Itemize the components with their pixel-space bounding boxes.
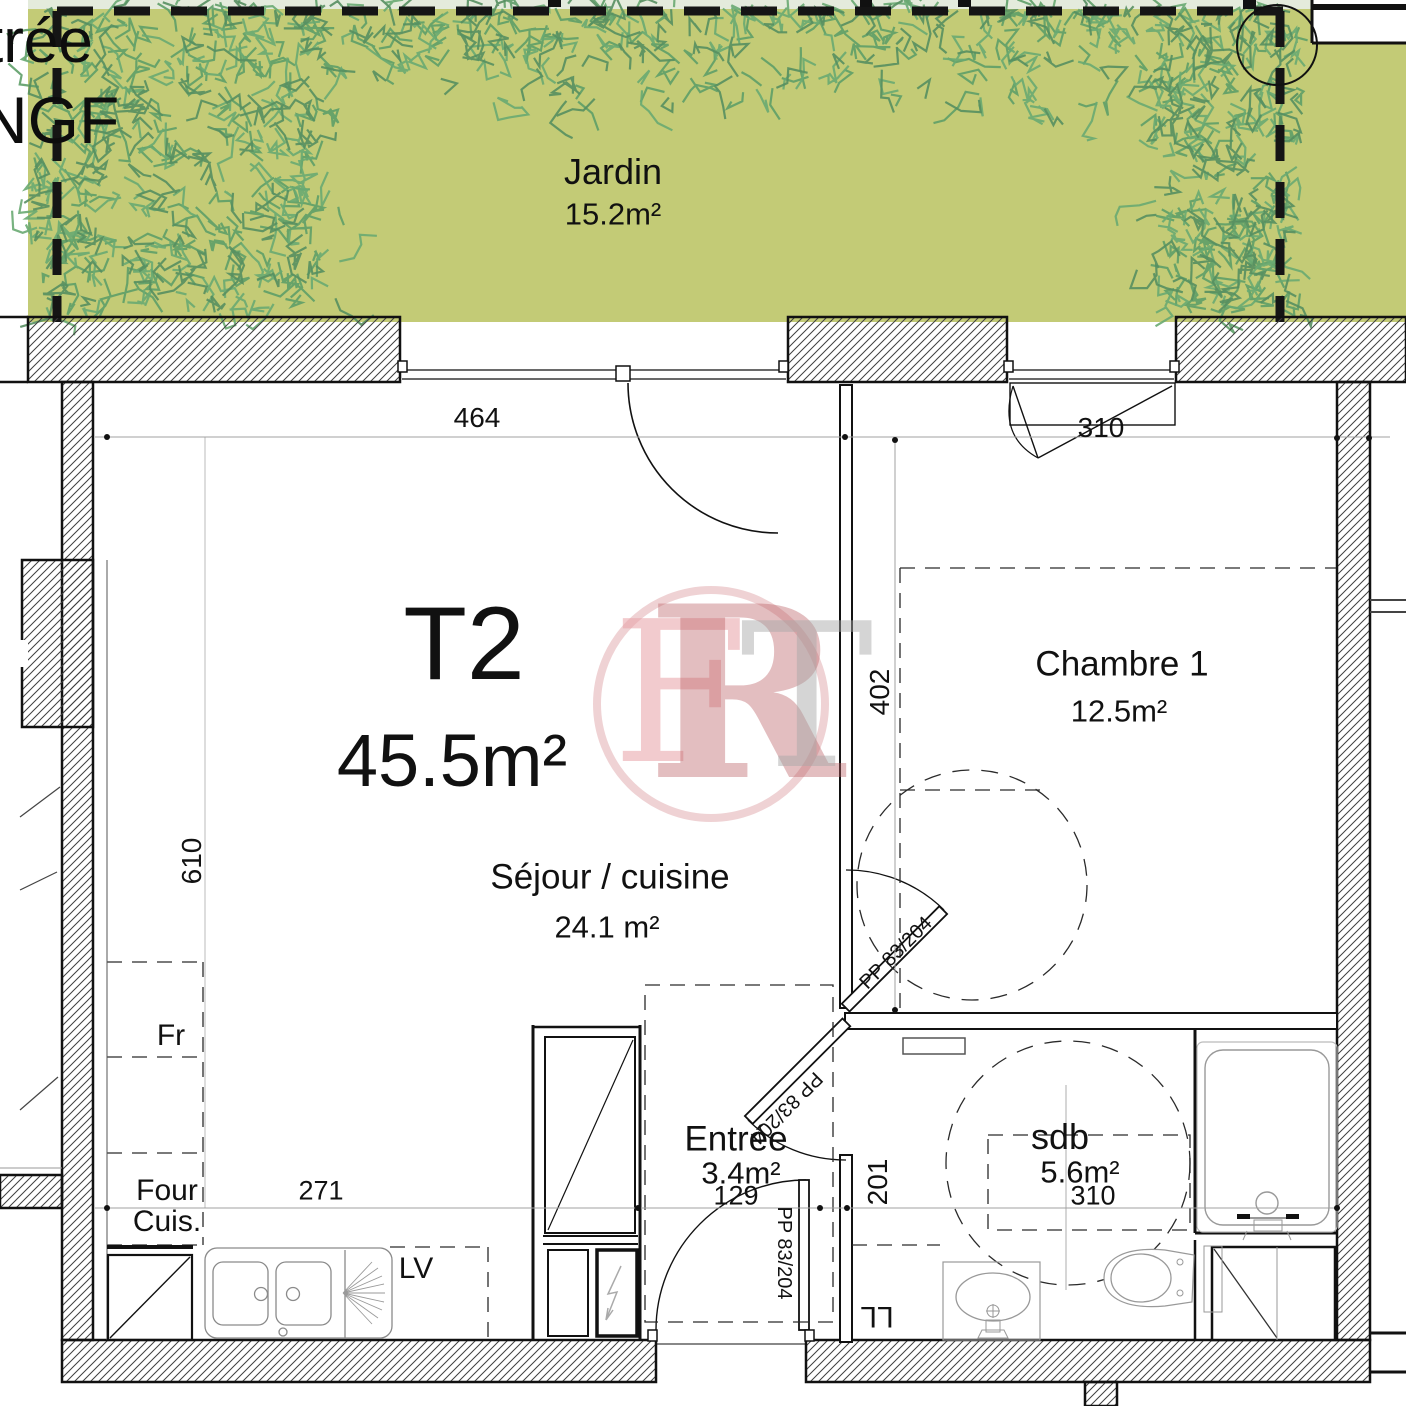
kitchen-sink: [205, 1248, 392, 1338]
chambre-window: [1004, 361, 1179, 458]
oven-label: Four: [136, 1176, 198, 1206]
hob-label: Cuis.: [133, 1207, 201, 1237]
dim-entree-width: 129: [713, 1183, 758, 1210]
washing-machine-label: LL: [860, 1301, 893, 1331]
dim-sdb-width: 310: [1070, 1183, 1115, 1210]
dim-sejour-length: 610: [178, 838, 206, 885]
garden-label: Jardin: [564, 154, 662, 190]
washbasin: [943, 1262, 1040, 1340]
sdb-label: sdb: [1031, 1119, 1089, 1155]
sejour-area: 24.1 m²: [554, 912, 659, 943]
dim-chambre-window: 310: [1078, 414, 1125, 442]
unit-type-label: T2: [403, 592, 524, 696]
dim-chambre-depth: 402: [866, 669, 894, 716]
oven-unit: [107, 1247, 193, 1340]
unit-area-label: 45.5m²: [337, 724, 567, 798]
chambre-label: Chambre 1: [1035, 647, 1208, 682]
floor-plan: trée NGF Jardin 15.2m² T2 45.5m² Séjour …: [0, 0, 1406, 1406]
edge-text-entree: trée: [0, 6, 93, 77]
entrance-door-label: PP 83/204: [774, 1206, 794, 1299]
dimension-dots: [104, 434, 1372, 1211]
entry-closet: [533, 1025, 640, 1340]
shower-tray: [1197, 1042, 1337, 1240]
dishwasher-label: LV: [399, 1254, 433, 1284]
dim-bay-window: 464: [454, 404, 501, 432]
chambre-area: 12.5m²: [1071, 696, 1167, 727]
edge-text-ngf: NGF: [0, 82, 119, 158]
toilet: [1104, 1249, 1194, 1306]
bathroom-cabinet: [1066, 1085, 1335, 1340]
dim-kitchen-run: 271: [298, 1178, 343, 1205]
garden-area: 15.2m²: [565, 199, 661, 230]
plan-linework: [0, 0, 1406, 1406]
dashed-zones: [107, 568, 1336, 1338]
fridge-label: Fr: [157, 1021, 185, 1051]
bay-window: [398, 361, 788, 533]
dim-hall-depth: 201: [864, 1159, 892, 1206]
sejour-label: Séjour / cuisine: [490, 860, 729, 895]
